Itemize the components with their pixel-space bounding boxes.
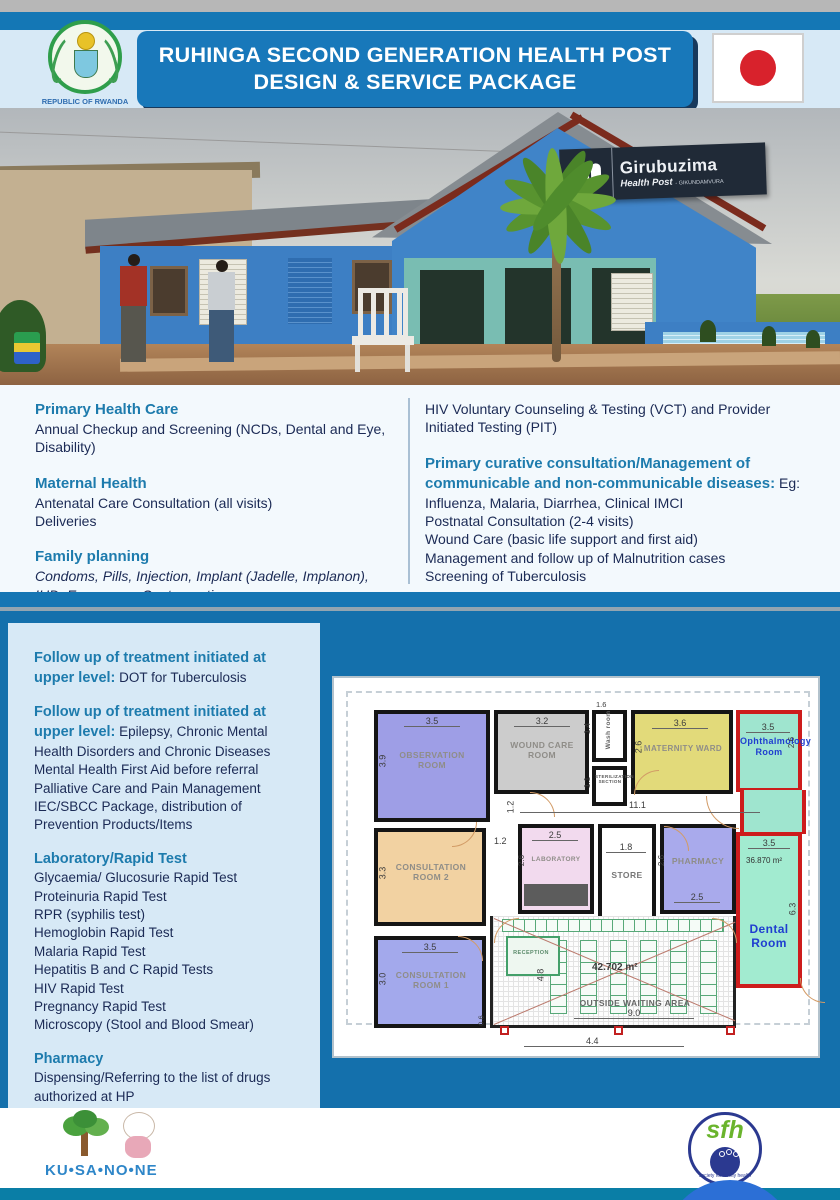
sign-type: Health Post <box>620 176 673 189</box>
person-red-shirt <box>120 266 147 306</box>
service-text: Postnatal Consultation (2-4 visits) <box>425 512 810 530</box>
waiting-bench <box>502 919 724 932</box>
section-divider-bar <box>0 592 840 607</box>
room-label: Dental Room <box>742 922 796 951</box>
service-heading: Maternal Health <box>35 474 397 494</box>
person-head <box>128 254 140 266</box>
room-label: PHARMACY <box>668 856 728 866</box>
title-banner: RUHINGA SECOND GENERATION HEALTH POST DE… <box>137 31 693 107</box>
cat-mascot-body <box>125 1136 151 1158</box>
chair-leg <box>405 345 410 372</box>
service-heading: Pharmacy <box>34 1050 304 1070</box>
room-label: Wash room <box>605 707 613 753</box>
service-heading: Primary curative consultation/Management… <box>425 455 775 492</box>
service-text: Palliative Care and Pain Management <box>34 780 304 798</box>
veranda-opening <box>420 270 484 350</box>
room-label: STORE <box>606 870 648 880</box>
room-label: CONSULTATION ROOM 2 <box>388 862 474 882</box>
veranda-opening <box>505 268 571 350</box>
dimension: 1.8 <box>606 842 646 853</box>
dimension: 2.5 <box>532 830 578 841</box>
service-heading-suffix: Eg: <box>779 475 800 491</box>
power-line <box>0 131 550 153</box>
page-title-line2: DESIGN & SERVICE PACKAGE <box>254 69 577 96</box>
dimension-line <box>524 1038 684 1047</box>
sfh-tagline: society for family health <box>691 1173 759 1179</box>
dimension: 0.6 <box>477 1015 486 1025</box>
window <box>150 266 188 316</box>
service-text: Mental Health First Aid before referral <box>34 761 304 779</box>
column-divider <box>408 398 410 584</box>
tree-leaves <box>73 1110 97 1128</box>
service-heading: Primary Health Care <box>35 400 397 420</box>
room-label: OUTSIDE WAITING AREA <box>560 998 710 1008</box>
service-text: HIV Voluntary Counseling & Testing (VCT)… <box>425 400 810 437</box>
dimension: 1.6 <box>596 700 606 709</box>
service-text: Microscopy (Stool and Blood Smear) <box>34 1016 304 1034</box>
service-text: Antenatal Care Consultation (all visits) <box>35 494 397 512</box>
room-label: WOUND CARE ROOM <box>504 740 580 760</box>
dimension: 3.5 <box>746 722 790 733</box>
dimension: 3.9 <box>377 755 387 768</box>
room-label: OBSERVATION ROOM <box>392 750 472 770</box>
services-left-column: Primary Health Care Annual Checkup and S… <box>35 400 397 621</box>
sterilization-section <box>592 766 627 806</box>
dimension: 2.6 <box>787 737 796 748</box>
service-text: Influenza, Malaria, Diarrhea, Clinical I… <box>425 494 810 512</box>
bucket <box>14 332 40 364</box>
area-value: 36.870 m² <box>746 856 782 865</box>
dimension: 2.5 <box>674 892 720 903</box>
service-text: Dispensing/Referring to the list of drug… <box>34 1069 304 1106</box>
dimension-line <box>520 804 760 813</box>
person-head <box>216 260 228 272</box>
sfh-logo: sfh society for family health <box>688 1112 762 1186</box>
service-text: HIV Rapid Test <box>34 980 304 998</box>
info-board <box>288 258 332 324</box>
service-text: Wound Care (basic life support and first… <box>425 530 810 548</box>
shrub <box>762 326 776 346</box>
service-text: Hemoglobin Rapid Test <box>34 924 304 942</box>
service-heading: Laboratory/Rapid Test <box>34 850 304 870</box>
org-name: REPUBLIC OF RWANDA <box>30 97 140 107</box>
dimension: 1.1 <box>583 777 592 788</box>
dimension: 1.4 <box>583 723 592 734</box>
japan-flag-icon <box>712 33 804 103</box>
service-text: Screening of Tuberculosis <box>425 567 810 585</box>
sfh-label: sfh <box>691 1118 759 1143</box>
service-text: Glycaemia/ Glucosurie Rapid Test <box>34 869 304 887</box>
person-legs <box>121 306 146 362</box>
service-text: Deliveries <box>35 512 397 530</box>
rwanda-ministry-logo: REPUBLIC OF RWANDA MINISTRY OF HEALTH <box>30 20 140 112</box>
dimension: 3.6 <box>652 718 708 729</box>
room-label: LABORATORY <box>526 856 586 864</box>
dimension: 2.6 <box>517 855 526 866</box>
area-value: 42.702 m² <box>592 962 638 973</box>
white-chair-back <box>358 288 408 340</box>
top-gray-strip <box>0 0 840 12</box>
column-marker <box>726 1026 735 1035</box>
service-text: Annual Checkup and Screening (NCDs, Dent… <box>35 420 397 457</box>
chair-leg <box>355 345 360 372</box>
dimension: 3.0 <box>377 973 387 986</box>
service-heading: Family planning <box>35 547 397 567</box>
service-text: Management and follow up of Malnutrition… <box>425 549 810 567</box>
room-label: RECEPTION <box>510 950 552 957</box>
dimension: 9.0 <box>574 1008 694 1019</box>
room-label: STERILIZATION SECTION <box>595 774 625 785</box>
shrub <box>700 320 716 342</box>
service-text: Hepatitis B and C Rapid Tests <box>34 961 304 979</box>
shrub <box>806 330 820 348</box>
service-text: Malaria Rapid Test <box>34 943 304 961</box>
kusanone-label: KU•SA•NO•NE <box>45 1162 225 1179</box>
service-text: IEC/SBCC Package, distribution of Preven… <box>34 798 304 835</box>
room-label: CONSULTATION ROOM 1 <box>388 970 474 990</box>
column-marker <box>500 1026 509 1035</box>
dimension: 3.5 <box>404 716 460 727</box>
dimension: 3.5 <box>748 838 790 849</box>
health-post-photo: Girubuzima Health Post - GIKUNDAMVURA <box>0 108 840 385</box>
column-marker <box>614 1026 623 1035</box>
laboratory-bench <box>524 884 588 906</box>
dimension: 3.5 <box>402 942 458 953</box>
service-text: Proteinuria Rapid Test <box>34 888 304 906</box>
dimension: 2.6 <box>633 741 643 754</box>
service-text: DOT for Tuberculosis <box>119 670 246 685</box>
dimension: 4.8 <box>535 969 545 982</box>
blue-section-left-panel: Follow up of treatment initiated at uppe… <box>8 623 320 1108</box>
dimension: 3.2 <box>514 716 570 727</box>
white-chair-seat <box>352 336 414 345</box>
sign-location: - GIKUNDAMVURA <box>675 178 723 186</box>
services-right-column: HIV Voluntary Counseling & Testing (VCT)… <box>425 400 810 603</box>
dimension: 6.3 <box>787 903 797 916</box>
dimension: 3.3 <box>377 867 387 880</box>
kusanone-logo: KU•SA•NO•NE <box>45 1116 225 1186</box>
dimension: 1.2 <box>505 801 515 814</box>
service-text: Pregnancy Rapid Test <box>34 998 304 1016</box>
page-title-line1: RUHINGA SECOND GENERATION HEALTH POST <box>159 42 671 69</box>
person-patterned-shirt <box>208 272 235 310</box>
dimension: 2.6 <box>657 855 666 866</box>
floor-plan-panel: OBSERVATION ROOM WOUND CARE ROOM Wash ro… <box>332 676 820 1058</box>
dimension: 1.2 <box>494 836 507 846</box>
room-label: MATERNITY WARD <box>638 744 728 754</box>
service-text: RPR (syphilis test) <box>34 906 304 924</box>
poster-page: REPUBLIC OF RWANDA MINISTRY OF HEALTH RU… <box>0 0 840 1200</box>
person-jeans <box>209 310 234 362</box>
rwanda-coat-of-arms-icon <box>48 20 122 94</box>
